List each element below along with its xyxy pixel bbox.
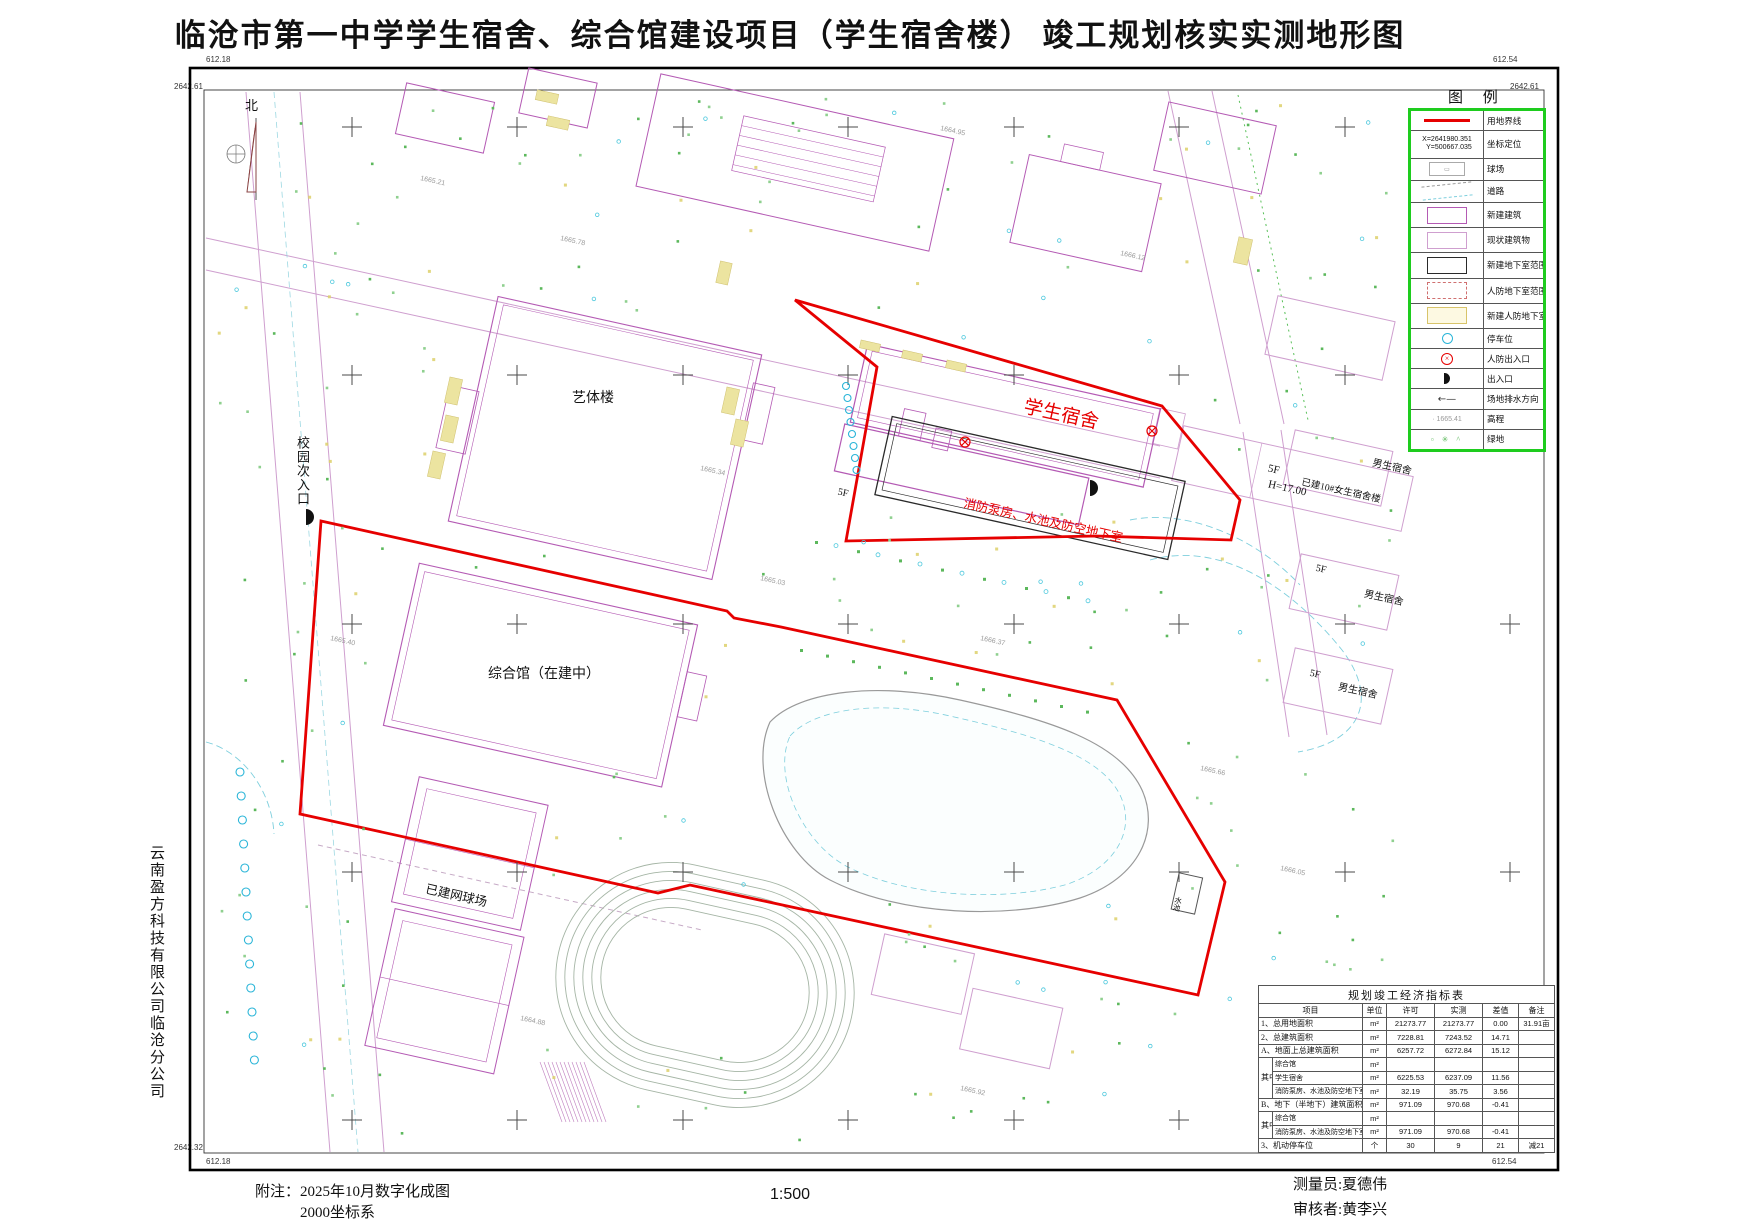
legend-box: 用地界线X=2641980.351Y=500667.035坐标定位▭球场道路新建…	[1408, 108, 1546, 452]
legend-item-elev: · 1665.41高程	[1411, 410, 1543, 430]
drain-icon: ←—	[1411, 389, 1484, 408]
pond	[763, 691, 1148, 912]
legend-item-entry: 出入口	[1411, 369, 1543, 389]
elevation-value: 1665.21	[420, 175, 446, 187]
value-cell	[1387, 1112, 1435, 1126]
note-line2: 2000坐标系	[300, 1201, 375, 1222]
legend-item-label: 出入口	[1484, 369, 1543, 388]
legend-item-label: 绿地	[1484, 430, 1543, 449]
existbld-icon	[1411, 228, 1484, 252]
parking-icon	[1411, 329, 1484, 348]
value-cell: 个	[1363, 1139, 1387, 1153]
value-cell: m²	[1363, 1017, 1387, 1031]
legend-item-civildef: 人防地下室范围线	[1411, 279, 1543, 304]
value-cell	[1519, 1031, 1555, 1045]
value-cell: m²	[1363, 1031, 1387, 1045]
col-header: 许可	[1387, 1004, 1435, 1018]
legend-item-newbld: 新建建筑	[1411, 203, 1543, 228]
value-cell: 0.00	[1483, 1017, 1519, 1031]
value-cell	[1435, 1112, 1483, 1126]
value-cell: -0.41	[1483, 1125, 1519, 1139]
value-cell: m²	[1363, 1125, 1387, 1139]
legend-item-court: ▭球场	[1411, 159, 1543, 181]
legend-item-basement: 新建地下室范围线	[1411, 253, 1543, 278]
legend-item-label: 新建人防地下室范围线	[1484, 304, 1543, 328]
value-cell: 减21	[1519, 1139, 1555, 1153]
value-cell: -0.41	[1483, 1098, 1519, 1112]
reviewer: 审核者:黄李兴	[1293, 1198, 1387, 1219]
elevation-labels: 1665.211665.781664.951666.121665.401665.…	[330, 125, 1306, 1097]
label-5f-b: 5F	[1315, 563, 1328, 576]
value-cell: m²	[1363, 1098, 1387, 1112]
legend-item-label: 高程	[1484, 410, 1543, 429]
grid-crosses	[342, 117, 1520, 1130]
legend-item-label: 人防地下室范围线	[1484, 279, 1543, 303]
label-xuesheng-sushe: 学生宿舍	[1022, 396, 1101, 434]
item-cell: 消防泵房、水池及防空地下室	[1273, 1085, 1363, 1099]
group-cell: 其中	[1259, 1112, 1273, 1139]
existing-buildings	[395, 68, 1415, 724]
col-header: 项目	[1259, 1004, 1363, 1018]
label-boys2: 男生宿舍	[1363, 587, 1405, 608]
tennis-courts	[360, 777, 553, 1074]
legend-item-newcivil: 新建人防地下室范围线	[1411, 304, 1543, 329]
item-cell: 综合馆	[1273, 1112, 1363, 1126]
label-tennis: 已建网球场	[424, 882, 488, 909]
value-cell: 35.75	[1435, 1085, 1483, 1099]
label-campus-entrance: 校园次入口	[293, 436, 312, 506]
label-5f-main: 5F	[1267, 463, 1281, 477]
note-label: 附注：	[255, 1180, 300, 1201]
elevation-value: 1664.95	[940, 125, 966, 137]
legend-item-label: 人防出入口	[1484, 349, 1543, 368]
legend-item-coords: X=2641980.351Y=500667.035坐标定位	[1411, 131, 1543, 158]
label-zonghedian: 综合馆（在建中）	[488, 666, 600, 682]
company-name: 云南盈方科技有限公司临沧分公司	[146, 845, 167, 1100]
label-north: 北	[245, 98, 258, 113]
table-title: 规划竣工经济指标表	[1259, 986, 1555, 1004]
table-row: 3、机动停车位个30921减21	[1259, 1139, 1555, 1153]
col-header: 实测	[1435, 1004, 1483, 1018]
newcivil-icon	[1411, 304, 1484, 328]
value-cell	[1519, 1071, 1555, 1085]
coords-icon: X=2641980.351Y=500667.035	[1411, 131, 1484, 157]
legend-item-civilentry: ×人防出入口	[1411, 349, 1543, 369]
green-icon: ▫ ✳ ^	[1411, 430, 1484, 449]
value-cell: m²	[1363, 1071, 1387, 1085]
roads	[206, 91, 1327, 1152]
value-cell: 970.68	[1435, 1125, 1483, 1139]
elevation-value: 1665.40	[330, 635, 356, 647]
label-boys3: 男生宿舍	[1337, 680, 1379, 701]
table-row: 2、总建筑面积m²7228.817243.5214.71	[1259, 1031, 1555, 1045]
road-icon	[1411, 181, 1484, 202]
legend-title: 图 例	[1448, 86, 1506, 107]
value-cell	[1435, 1058, 1483, 1072]
value-cell: 21273.77	[1387, 1017, 1435, 1031]
newbld-icon	[1411, 203, 1484, 227]
group-cell: 其中	[1259, 1058, 1273, 1099]
elevation-value: 1666.05	[1280, 865, 1306, 877]
value-cell: 21273.77	[1435, 1017, 1483, 1031]
item-cell: 1、总用地面积	[1259, 1017, 1363, 1031]
value-cell: m²	[1363, 1044, 1387, 1058]
value-cell	[1519, 1098, 1555, 1112]
value-cell: 9	[1435, 1139, 1483, 1153]
map-scale: 1:500	[770, 1186, 810, 1204]
value-cell: 15.12	[1483, 1044, 1519, 1058]
vegetation-scatter	[218, 98, 1394, 1141]
elevation-value: 1665.92	[960, 1085, 986, 1097]
civildef-icon	[1411, 279, 1484, 303]
note-line1: 2025年10月数字化成图	[300, 1180, 450, 1201]
item-cell: A、地面上总建筑面积	[1259, 1044, 1363, 1058]
value-cell	[1483, 1058, 1519, 1072]
elevation-value: 1664.88	[520, 1015, 546, 1027]
legend-item-drain: ←—场地排水方向	[1411, 389, 1543, 409]
item-cell: B、地下（半地下）建筑面积	[1259, 1098, 1363, 1112]
table-row: 消防泵房、水池及防空地下室m²32.1935.753.56	[1259, 1085, 1555, 1099]
table-row: B、地下（半地下）建筑面积m²971.09970.68-0.41	[1259, 1098, 1555, 1112]
civilentry-icon: ×	[1411, 349, 1484, 368]
value-cell: 11.56	[1483, 1071, 1519, 1085]
table-row: A、地面上总建筑面积m²6257.726272.8415.12	[1259, 1044, 1555, 1058]
item-cell: 综合馆	[1273, 1058, 1363, 1072]
elevation-value: 1665.78	[560, 235, 586, 247]
table-row: 学生宿舍m²6225.536237.0911.56	[1259, 1071, 1555, 1085]
value-cell: 7228.81	[1387, 1031, 1435, 1045]
basement-icon	[1411, 253, 1484, 277]
value-cell: 6237.09	[1435, 1071, 1483, 1085]
value-cell: 32.19	[1387, 1085, 1435, 1099]
value-cell	[1387, 1058, 1435, 1072]
value-cell	[1519, 1125, 1555, 1139]
value-cell	[1519, 1044, 1555, 1058]
value-cell: 971.09	[1387, 1098, 1435, 1112]
survey-map-sheet: 临沧市第一中学学生宿舍、综合馆建设项目（学生宿舍楼） 竣工规划核实实测地形图 6…	[0, 0, 1742, 1225]
legend-item-label: 用地界线	[1484, 111, 1543, 130]
gate-icon	[306, 509, 314, 525]
elevation-value: 1665.03	[760, 575, 786, 587]
gate-icon	[1090, 480, 1098, 496]
flowerbeds	[427, 90, 1252, 479]
value-cell: 6225.53	[1387, 1071, 1435, 1085]
value-cell: 31.91亩	[1519, 1017, 1555, 1031]
value-cell: 970.68	[1435, 1098, 1483, 1112]
label-5f-a: 5F	[837, 487, 850, 500]
indicator-table: 规划竣工经济指标表项目单位许可实测差值备注1、总用地面积m²21273.7721…	[1258, 985, 1555, 1153]
legend-item-label: 停车位	[1484, 329, 1543, 348]
elev-icon: · 1665.41	[1411, 410, 1484, 429]
entry-icon	[1411, 369, 1484, 388]
legend-item-label: 道路	[1484, 181, 1543, 202]
table-row: 其中综合馆m²	[1259, 1112, 1555, 1126]
value-cell: m²	[1363, 1085, 1387, 1099]
legend-item-green: ▫ ✳ ^绿地	[1411, 430, 1543, 449]
legend-item-existbld: 现状建筑物	[1411, 228, 1543, 253]
redline-icon	[1411, 111, 1484, 130]
legend-item-label: 新建地下室范围线	[1484, 253, 1543, 277]
value-cell	[1483, 1112, 1519, 1126]
surveyor: 测量员:夏德伟	[1293, 1173, 1387, 1194]
elevation-value: 1666.12	[1120, 250, 1146, 262]
table-row: 消防泵房、水池及防空地下室m²971.09970.68-0.41	[1259, 1125, 1555, 1139]
col-header: 备注	[1519, 1004, 1555, 1018]
item-cell: 学生宿舍	[1273, 1071, 1363, 1085]
legend-item-label: 坐标定位	[1484, 131, 1543, 157]
table-row: 其中综合馆m²	[1259, 1058, 1555, 1072]
value-cell: 3.56	[1483, 1085, 1519, 1099]
value-cell: 30	[1387, 1139, 1435, 1153]
building-yitilou	[421, 290, 781, 583]
legend-item-label: 现状建筑物	[1484, 228, 1543, 252]
value-cell	[1519, 1085, 1555, 1099]
item-cell: 2、总建筑面积	[1259, 1031, 1363, 1045]
elevation-value: 1665.66	[1200, 765, 1226, 777]
legend-item-parking: 停车位	[1411, 329, 1543, 349]
table-row: 1、总用地面积m²21273.7721273.770.0031.91亩	[1259, 1017, 1555, 1031]
item-cell: 消防泵房、水池及防空地下室	[1273, 1125, 1363, 1139]
value-cell: 21	[1483, 1139, 1519, 1153]
value-cell	[1519, 1058, 1555, 1072]
col-header: 差值	[1483, 1004, 1519, 1018]
col-header: 单位	[1363, 1004, 1387, 1018]
elevation-value: 1665.34	[700, 465, 726, 477]
grandstand-hatch	[540, 1062, 606, 1122]
value-cell: 7243.52	[1435, 1031, 1483, 1045]
legend-item-label: 场地排水方向	[1484, 389, 1543, 408]
value-cell	[1519, 1112, 1555, 1126]
value-cell: m²	[1363, 1112, 1387, 1126]
elevation-value: 1666.37	[980, 635, 1006, 647]
north-arrow	[227, 118, 256, 200]
value-cell: 14.71	[1483, 1031, 1519, 1045]
label-yitilou: 艺体楼	[572, 390, 614, 406]
legend-item-road: 道路	[1411, 181, 1543, 203]
item-cell: 3、机动停车位	[1259, 1139, 1363, 1153]
legend-item-label: 球场	[1484, 159, 1543, 180]
legend-item-redline: 用地界线	[1411, 111, 1543, 131]
parking-stalls	[236, 383, 860, 1065]
value-cell: 6257.72	[1387, 1044, 1435, 1058]
legend-item-label: 新建建筑	[1484, 203, 1543, 227]
value-cell: m²	[1363, 1058, 1387, 1072]
value-cell: 971.09	[1387, 1125, 1435, 1139]
court-icon: ▭	[1411, 159, 1484, 180]
value-cell: 6272.84	[1435, 1044, 1483, 1058]
label-5f-c: 5F	[1309, 668, 1322, 681]
hedge-rows	[800, 541, 1090, 714]
basketball-courts	[864, 934, 1070, 1069]
label-boys1: 男生宿舍	[1371, 456, 1413, 477]
